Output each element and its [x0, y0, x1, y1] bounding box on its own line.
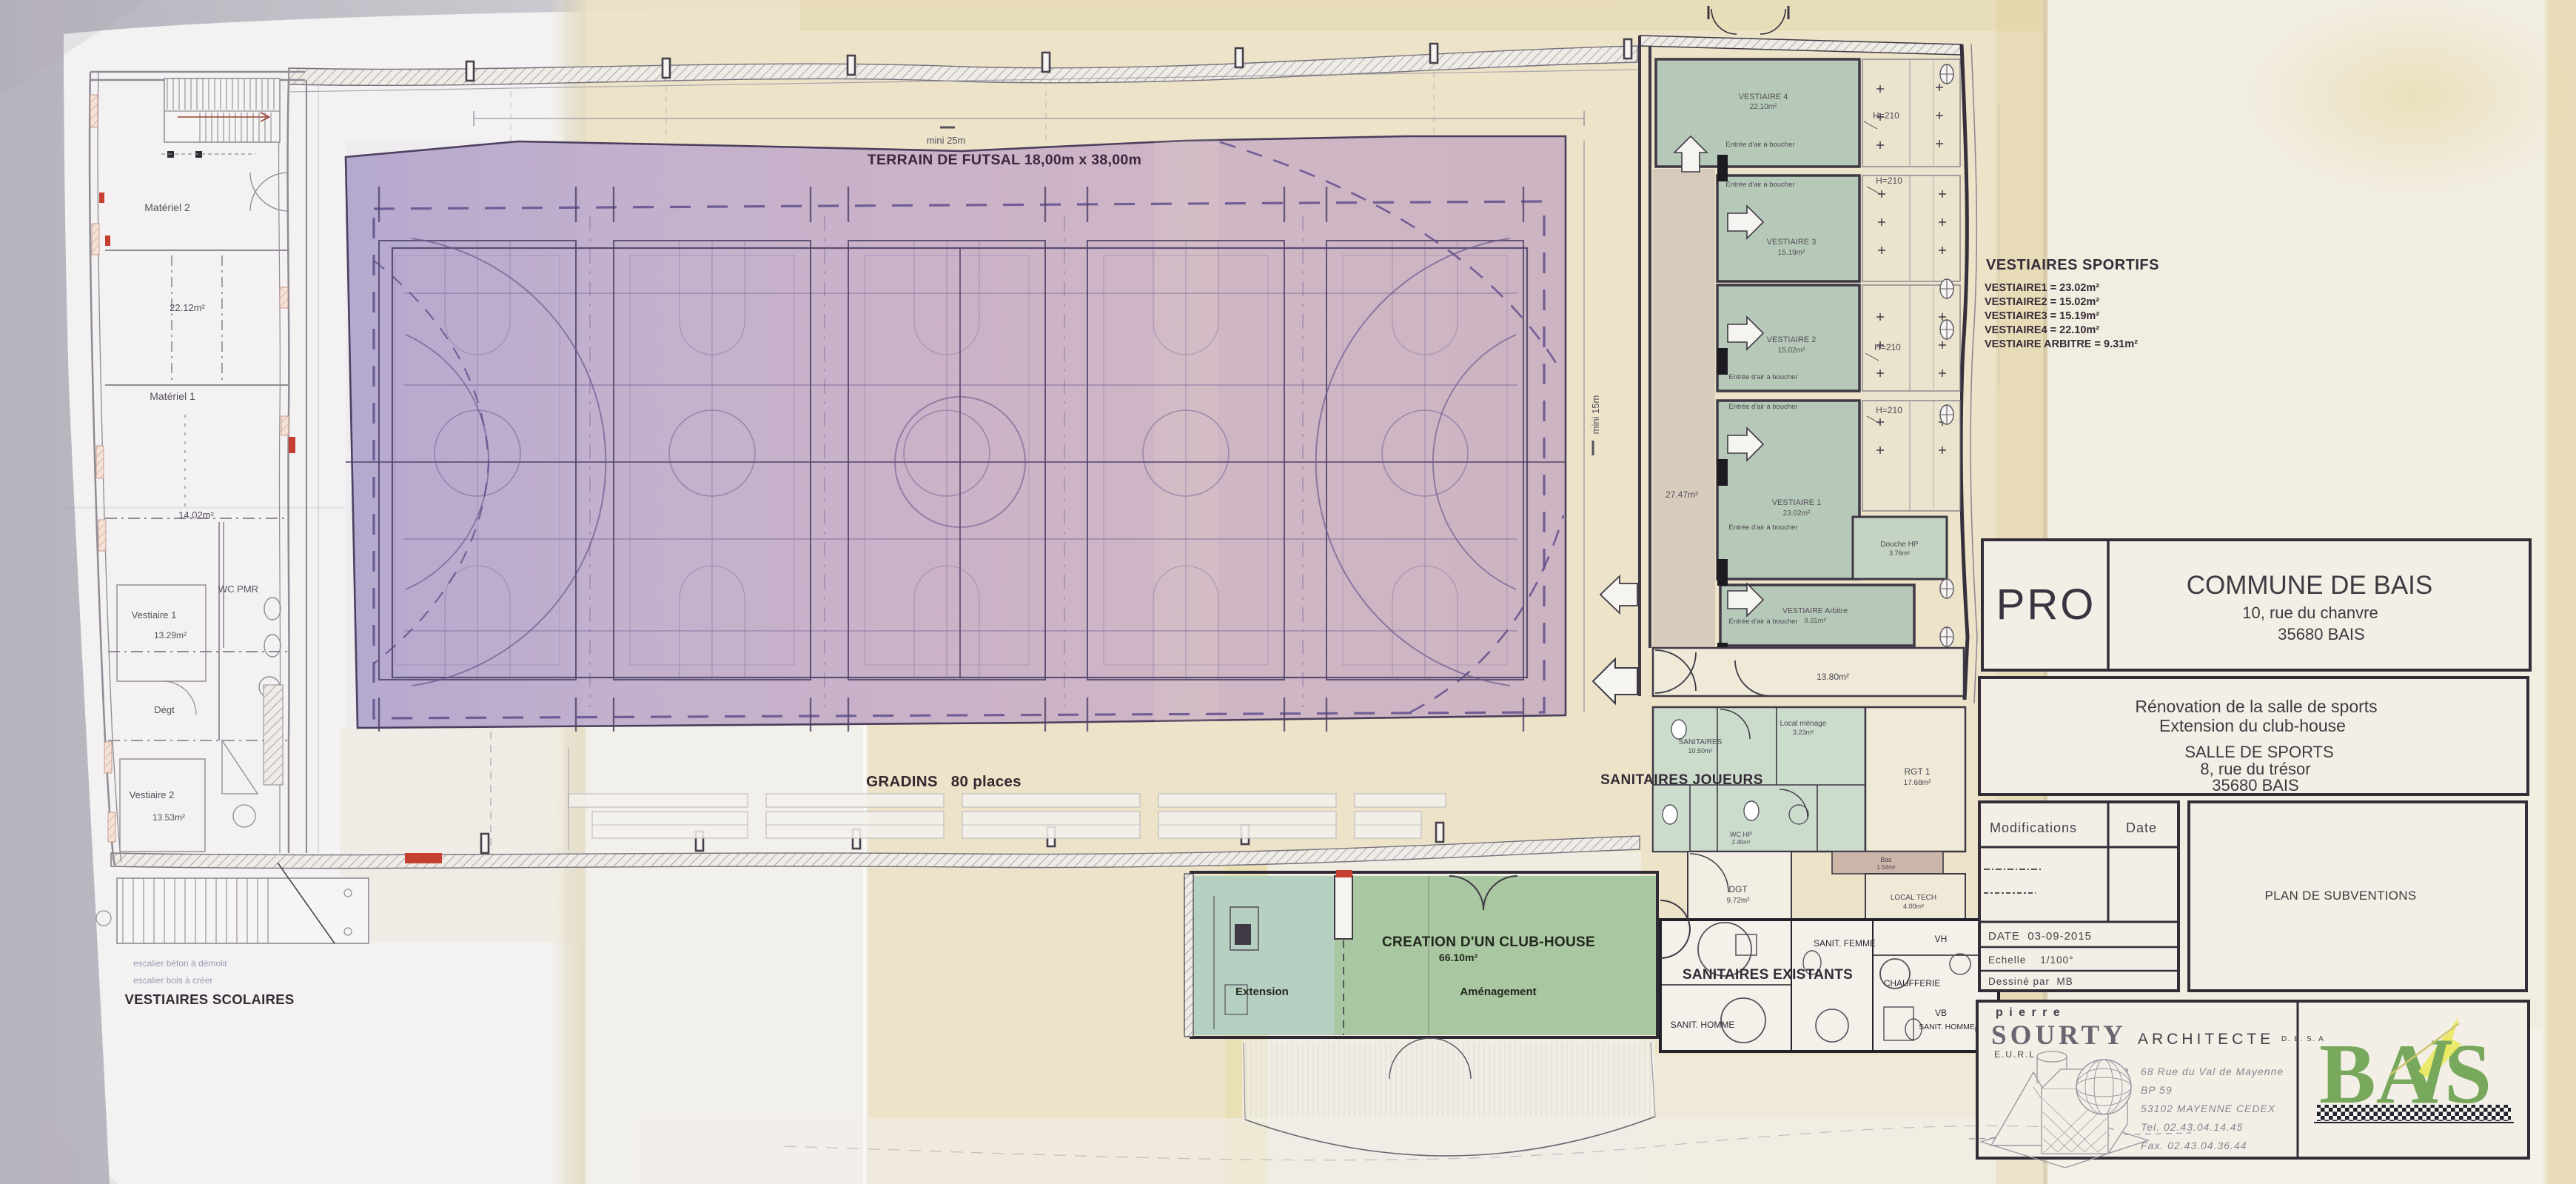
- svg-text:Entrée d'air à boucher: Entrée d'air à boucher: [1728, 618, 1797, 626]
- svg-text:15.02m²: 15.02m²: [1778, 347, 1805, 355]
- svg-text:Entrée d'air à boucher: Entrée d'air à boucher: [1728, 403, 1797, 411]
- svg-text:Local ménage: Local ménage: [1780, 720, 1827, 728]
- svg-text:Date: Date: [2126, 820, 2157, 835]
- svg-text:Entrée d'air à boucher: Entrée d'air à boucher: [1725, 181, 1794, 189]
- svg-text:VB: VB: [1935, 1008, 1947, 1018]
- svg-text:35680 BAIS: 35680 BAIS: [2212, 776, 2298, 795]
- svg-text:Matériel 2: Matériel 2: [144, 201, 190, 213]
- svg-text:TERRAIN DE FUTSAL 18,00m x 38,: TERRAIN DE FUTSAL 18,00m x 38,00m: [868, 152, 1141, 168]
- svg-text:68 Rue du Val de Mayenne: 68 Rue du Val de Mayenne: [2141, 1066, 2284, 1077]
- svg-text:LOCAL TECH: LOCAL TECH: [1891, 894, 1936, 902]
- svg-text:SANITAIRES: SANITAIRES: [1679, 738, 1723, 746]
- svg-text:VESTIAIRE 2: VESTIAIRE 2: [1767, 335, 1817, 344]
- svg-text:COMMUNE DE BAIS: COMMUNE DE BAIS: [2187, 571, 2433, 600]
- svg-text:Fax. 02.43.04.36.44: Fax. 02.43.04.36.44: [2141, 1140, 2247, 1151]
- svg-text:1.54m²: 1.54m²: [1877, 864, 1896, 871]
- svg-text:VESTIAIRE 4: VESTIAIRE 4: [1739, 93, 1788, 101]
- svg-text:9.72m²: 9.72m²: [1726, 897, 1750, 905]
- svg-text:SANIT. HOMME: SANIT. HOMME: [1919, 1023, 1975, 1031]
- svg-text:Extension du club-house: Extension du club-house: [2159, 716, 2346, 735]
- svg-text:GRADINS 80 places: GRADINS 80 places: [866, 773, 1022, 790]
- svg-text:WC HP: WC HP: [1730, 831, 1752, 838]
- svg-text:13.29m²: 13.29m²: [154, 630, 187, 641]
- svg-text:VH: VH: [1935, 934, 1948, 944]
- svg-text:SANITAIRES EXISTANTS: SANITAIRES EXISTANTS: [1683, 967, 1853, 983]
- svg-text:Rénovation de la salle de spor: Rénovation de la salle de sports: [2135, 697, 2377, 716]
- svg-text:PRO: PRO: [1996, 581, 2096, 629]
- svg-text:14.02m²: 14.02m²: [178, 509, 214, 521]
- svg-text:escalier béton à démolir: escalier béton à démolir: [133, 958, 227, 969]
- svg-text:DATE 03-09-2015: DATE 03-09-2015: [1988, 930, 2092, 943]
- svg-text:Dessiné par MB: Dessiné par MB: [1988, 976, 2073, 987]
- svg-text:VESTIAIRE 1: VESTIAIRE 1: [1772, 498, 1822, 507]
- svg-text:4.00m²: 4.00m²: [1903, 903, 1924, 910]
- svg-text:RGT 1: RGT 1: [1904, 766, 1930, 777]
- svg-text:53102 MAYENNE CEDEX: 53102 MAYENNE CEDEX: [2141, 1103, 2275, 1114]
- svg-text:SOURTY: SOURTY: [1991, 1020, 2127, 1051]
- svg-text:22.12m²: 22.12m²: [170, 302, 205, 313]
- svg-text:Entrée d'air à boucher: Entrée d'air à boucher: [1728, 524, 1797, 532]
- svg-text:23.02m²: 23.02m²: [1783, 509, 1811, 518]
- svg-text:CHAUFFERIE: CHAUFFERIE: [1884, 978, 1941, 989]
- svg-text:VESTIAIRE ARBITRE = 9.31m²: VESTIAIRE ARBITRE = 9.31m²: [1985, 338, 2138, 350]
- svg-text:PLAN DE SUBVENTIONS: PLAN DE SUBVENTIONS: [2264, 889, 2416, 903]
- svg-text:mini 15m: mini 15m: [1590, 395, 1601, 435]
- svg-text:CREATION D'UN CLUB-HOUSE: CREATION D'UN CLUB-HOUSE: [1382, 934, 1595, 950]
- svg-text:H=210: H=210: [1873, 110, 1899, 121]
- svg-text:DGT: DGT: [1728, 884, 1748, 894]
- svg-text:SANIT. HOMME: SANIT. HOMME: [1671, 1020, 1735, 1030]
- svg-text:SALLE DE SPORTS: SALLE DE SPORTS: [2184, 743, 2333, 761]
- svg-text:2.40m²: 2.40m²: [1732, 839, 1751, 846]
- svg-text:10, rue du chanvre: 10, rue du chanvre: [2242, 603, 2378, 622]
- svg-text:Bac: Bac: [1880, 856, 1892, 863]
- svg-text:E.U.R.L: E.U.R.L: [1994, 1049, 2036, 1060]
- svg-text:H=210: H=210: [1874, 342, 1901, 352]
- svg-text:Entrée d'air à boucher: Entrée d'air à boucher: [1725, 141, 1794, 149]
- svg-text:VESTIAIRE2 = 15.02m²: VESTIAIRE2 = 15.02m²: [1985, 296, 2099, 308]
- svg-text:13.53m²: 13.53m²: [152, 812, 185, 823]
- svg-text:Extension: Extension: [1235, 986, 1289, 998]
- svg-text:13.80m²: 13.80m²: [1817, 672, 1849, 682]
- svg-text:Echelle 1/100°: Echelle 1/100°: [1988, 954, 2073, 966]
- svg-text:WC PMR: WC PMR: [218, 583, 258, 595]
- svg-text:Vestiaire 1: Vestiaire 1: [132, 609, 177, 621]
- svg-text:VESTIAIRE1 = 23.02m²: VESTIAIRE1 = 23.02m²: [1985, 282, 2099, 294]
- svg-text:Modifications: Modifications: [1990, 820, 2077, 835]
- svg-text:Aménagement: Aménagement: [1460, 986, 1536, 998]
- svg-text:VESTIAIRE Arbitre: VESTIAIRE Arbitre: [1782, 606, 1848, 615]
- svg-text:Vestiaire 2: Vestiaire 2: [130, 789, 175, 800]
- svg-text:VESTIAIRES SCOLAIRES: VESTIAIRES SCOLAIRES: [124, 991, 294, 1007]
- svg-text:VESTIAIRE3 = 15.19m²: VESTIAIRE3 = 15.19m²: [1985, 310, 2099, 322]
- svg-text:9.31m²: 9.31m²: [1804, 617, 1826, 625]
- svg-text:Matériel 1: Matériel 1: [150, 390, 195, 402]
- svg-text:10.50m²: 10.50m²: [1688, 747, 1712, 755]
- svg-text:VESTIAIRE4 = 22.10m²: VESTIAIRE4 = 22.10m²: [1985, 324, 2099, 336]
- svg-text:ARCHITECTE: ARCHITECTE: [2138, 1031, 2274, 1048]
- svg-text:p i e r r e: p i e r r e: [1996, 1006, 2062, 1019]
- svg-text:17.68m²: 17.68m²: [1904, 779, 1931, 787]
- svg-text:15.19m²: 15.19m²: [1778, 249, 1805, 257]
- svg-text:Douche HP: Douche HP: [1880, 541, 1918, 549]
- svg-text:H=210: H=210: [1876, 405, 1902, 415]
- svg-text:VESTIAIRE 3: VESTIAIRE 3: [1767, 238, 1817, 247]
- svg-text:3.23m²: 3.23m²: [1793, 729, 1814, 736]
- svg-text:SANIT. FEMME: SANIT. FEMME: [1814, 938, 1876, 949]
- svg-text:VESTIAIRES SPORTIFS: VESTIAIRES SPORTIFS: [1986, 257, 2159, 273]
- svg-text:escalier bois à créer: escalier bois à créer: [133, 975, 212, 986]
- svg-text:27.47m²: 27.47m²: [1666, 489, 1698, 500]
- svg-text:Entrée d'air à boucher: Entrée d'air à boucher: [1728, 373, 1797, 381]
- svg-text:Tel. 02.43.04.14.45: Tel. 02.43.04.14.45: [2141, 1121, 2243, 1133]
- svg-text:Dégt: Dégt: [154, 704, 175, 715]
- svg-text:22.10m²: 22.10m²: [1750, 103, 1777, 111]
- svg-text:66.10m²: 66.10m²: [1439, 951, 1477, 963]
- svg-text:mini 25m: mini 25m: [927, 135, 966, 146]
- svg-text:35680 BAIS: 35680 BAIS: [2278, 625, 2364, 643]
- svg-text:BP 59: BP 59: [2141, 1084, 2173, 1096]
- svg-text:D. E. S. A: D. E. S. A: [2281, 1035, 2324, 1043]
- svg-text:H=210: H=210: [1876, 175, 1902, 186]
- svg-text:3.76m²: 3.76m²: [1889, 549, 1910, 557]
